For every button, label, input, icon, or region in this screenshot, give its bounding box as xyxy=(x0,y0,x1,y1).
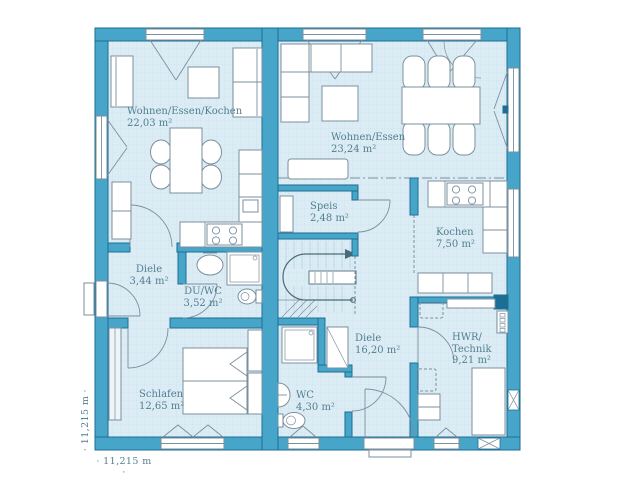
floor-plan: Wohnen/Essen/Kochen 22,03 m² Diele 3,44 … xyxy=(0,0,640,480)
room-label-speis: Speis 2,48 m² xyxy=(310,201,349,224)
shower-duwc xyxy=(227,252,262,285)
water-tank xyxy=(472,368,505,435)
dimension-height-label: · 11,215 m · xyxy=(80,385,91,455)
dimension-width-label: · 11,215 m · xyxy=(95,456,153,478)
room-label-schlafen: Schlafen 12,65 m² xyxy=(139,389,184,412)
room-label-wohnen-essen-kochen: Wohnen/Essen/Kochen 22,03 m² xyxy=(127,106,242,129)
room-label-hwr-technik: HWR/ Technik 9,21 m² xyxy=(452,332,492,367)
speis-shelf xyxy=(280,196,293,232)
room-label-wc: WC 4,30 m² xyxy=(296,390,335,413)
room-label-diele-right: Diele 16,20 m² xyxy=(355,333,400,356)
wardrobe-strip xyxy=(109,328,121,420)
toilet-duwc xyxy=(238,289,262,304)
sofa-left-wall xyxy=(111,56,133,107)
hwr-cabinet xyxy=(418,394,440,420)
wall-vent-right xyxy=(508,390,519,410)
double-bed xyxy=(183,348,247,414)
toilet-wc xyxy=(278,413,305,429)
room-label-diele-left: Diele 3,44 m² xyxy=(124,264,174,287)
hall-closet xyxy=(327,327,348,368)
coffee-table-right xyxy=(322,86,358,121)
coffee-table-left xyxy=(188,67,219,98)
room-label-duwc: DU/WC 3,52 m² xyxy=(180,286,226,309)
tall-cabinet-left xyxy=(112,182,131,239)
vent-unit xyxy=(497,311,508,333)
hwr-shelf xyxy=(447,299,495,308)
room-label-kochen: Kochen 7,50 m² xyxy=(436,227,475,250)
room-label-wohnen-essen: Wohnen/Essen 23,24 m² xyxy=(331,132,405,155)
wall-vent-bottom xyxy=(478,438,500,449)
dining-set-right xyxy=(402,56,480,155)
shower-wc xyxy=(282,327,317,363)
sideboard xyxy=(288,159,348,179)
